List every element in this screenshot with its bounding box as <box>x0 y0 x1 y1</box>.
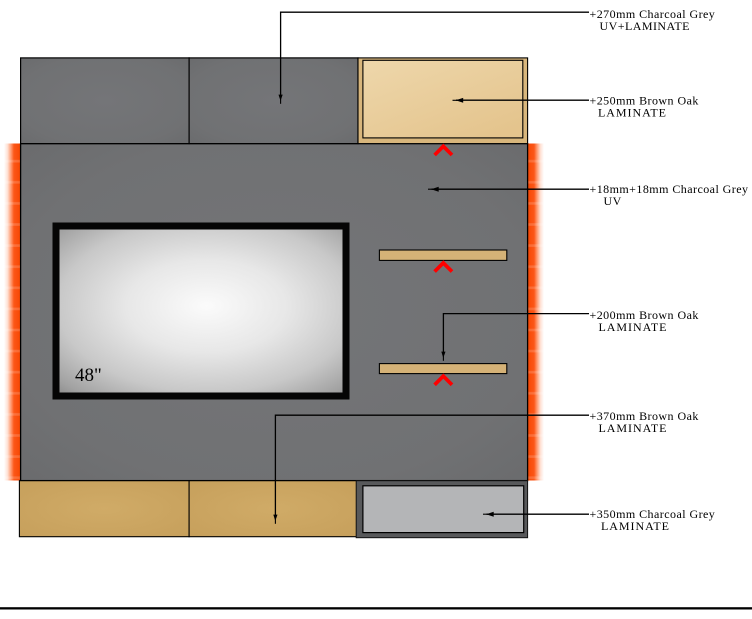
svg-text:48": 48" <box>75 365 102 386</box>
svg-text:UV: UV <box>604 194 622 208</box>
svg-text:LAMINATE: LAMINATE <box>599 320 668 334</box>
svg-text:LAMINATE: LAMINATE <box>601 519 670 533</box>
svg-text:LAMINATE: LAMINATE <box>598 105 667 119</box>
svg-text:UV+LAMINATE: UV+LAMINATE <box>600 19 690 33</box>
svg-text:LAMINATE: LAMINATE <box>599 421 668 435</box>
